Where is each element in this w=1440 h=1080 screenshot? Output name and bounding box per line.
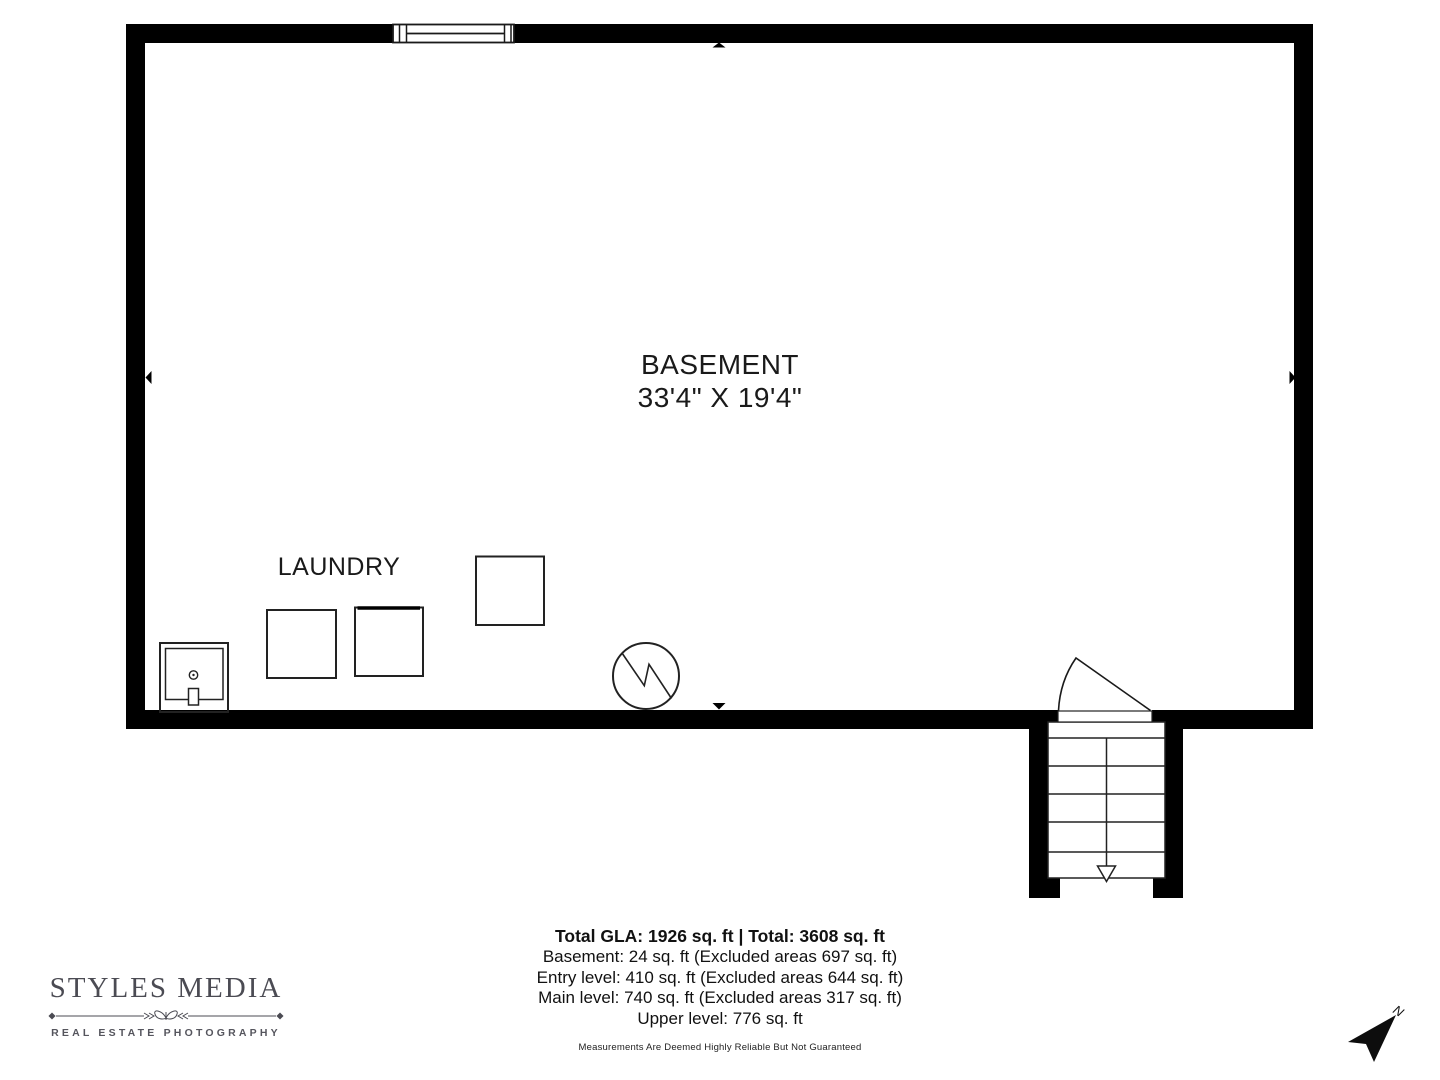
- stair-wall-stub-left: [1029, 878, 1060, 898]
- marker-bottom-icon: [713, 703, 726, 710]
- wall-top: [126, 24, 1313, 43]
- wall-left: [126, 24, 145, 729]
- marker-top-icon: [713, 43, 726, 48]
- brand-tagline: REAL ESTATE PHOTOGRAPHY: [40, 1027, 292, 1039]
- laundry-label: LAUNDRY: [278, 553, 401, 581]
- brand-logo: STYLES MEDIA REAL ESTA: [40, 972, 292, 1039]
- dryer-symbol: [355, 608, 423, 677]
- appliance-box-symbol: [476, 557, 544, 626]
- marker-left-icon: [146, 371, 152, 384]
- wall-right: [1294, 24, 1313, 729]
- utility-sink-symbol: [160, 643, 228, 712]
- room-name-label: BASEMENT: [641, 349, 799, 380]
- total-gla-line: Total GLA: 1926 sq. ft | Total: 3608 sq.…: [0, 926, 1440, 947]
- brand-name: STYLES MEDIA: [40, 972, 292, 1005]
- room-dimensions-label: 33'4" X 19'4": [638, 382, 803, 413]
- window: [393, 25, 514, 43]
- floor-plan-page: BASEMENT 33'4" X 19'4" LAUNDRY Total GLA…: [0, 0, 1440, 1080]
- laundry-appliances: [160, 557, 679, 713]
- washer-symbol: [267, 610, 336, 678]
- door-swing: [1059, 658, 1151, 711]
- stair-wall-right: [1164, 712, 1183, 898]
- butterfly-icon: [155, 1011, 178, 1020]
- door-threshold: [1058, 711, 1152, 722]
- summary-line-basement: Basement: 24 sq. ft (Excluded areas 697 …: [0, 947, 1440, 968]
- north-arrow-icon: N: [1340, 996, 1412, 1070]
- wall-bottom-left-segment: [126, 710, 1058, 729]
- logo-divider-ornament-icon: [46, 1008, 286, 1024]
- stair-wall-stub-right: [1153, 878, 1183, 898]
- disclaimer-text: Measurements Are Deemed Highly Reliable …: [0, 1042, 1440, 1053]
- water-heater-symbol: [613, 643, 679, 709]
- north-arrow-shape: [1348, 1015, 1396, 1062]
- stair-wall-left: [1029, 712, 1048, 898]
- floor-plan-drawing: BASEMENT 33'4" X 19'4" LAUNDRY: [0, 0, 1440, 920]
- stairwell: [1029, 658, 1183, 898]
